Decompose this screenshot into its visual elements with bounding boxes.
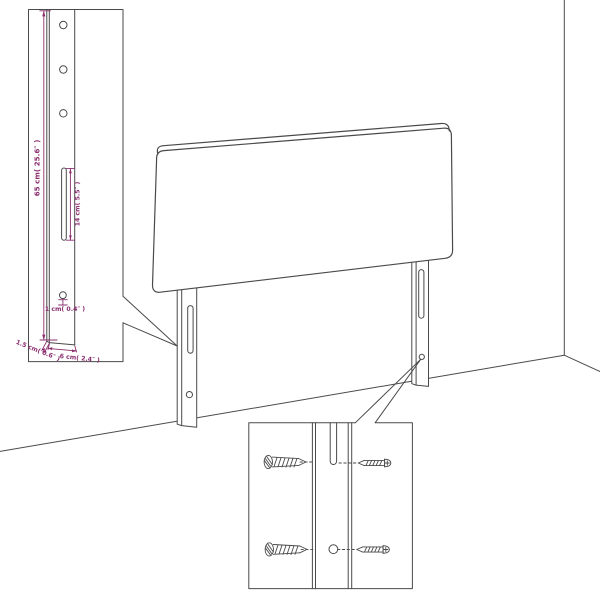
diagram-svg: 65 cm( 25.6″ ) 14 cm( 5.5″ ) 1 cm( 0.4″ … — [0, 0, 600, 600]
height-label: 65 cm( 25.6″ ) — [33, 140, 42, 197]
post-bottom-hole — [60, 292, 67, 299]
floor-line-right — [564, 355, 600, 371]
post-callout-upper — [123, 296, 177, 346]
strip-hole — [329, 545, 338, 554]
screw-icon-top — [339, 459, 391, 467]
screw-icon-bottom — [338, 546, 390, 554]
left-leg-slot — [188, 306, 193, 354]
slot-length-label: 14 cm( 5.5″ ) — [74, 182, 81, 227]
dimension-height: 65 cm( 25.6″ ) — [33, 11, 58, 340]
dimension-hole: 1 cm( 0.4″ ) — [45, 300, 85, 313]
leg-strip-drawing — [312, 423, 351, 589]
right-leg-slot — [419, 270, 424, 319]
post-callout-lower — [123, 323, 177, 346]
side-thickness-label: 1.5 cm( 0.6″ ) — [15, 339, 61, 363]
headboard-dimension-diagram: 65 cm( 25.6″ ) 14 cm( 5.5″ ) 1 cm( 0.4″ … — [0, 0, 600, 600]
left-leg-body — [177, 286, 197, 427]
screw-callout-right — [375, 359, 421, 422]
post-bottom-edge — [47, 341, 75, 345]
screw-callout-left — [355, 359, 420, 422]
headboard-left-leg — [177, 286, 197, 427]
post-detail-box: 65 cm( 25.6″ ) 14 cm( 5.5″ ) 1 cm( 0.4″ … — [15, 10, 123, 365]
post-slot — [62, 168, 67, 240]
floor-line-left — [0, 355, 564, 451]
front-width-label: 6 cm( 2.4″ ) — [59, 353, 100, 364]
headboard-panel — [153, 128, 453, 292]
hole-offset-label: 1 cm( 0.4″ ) — [45, 306, 85, 313]
post-hole-3 — [60, 110, 67, 117]
left-leg-hole — [186, 392, 192, 398]
callout-lines — [123, 296, 421, 422]
hatched-screw-icon-top — [264, 455, 312, 468]
dimension-slot: 14 cm( 5.5″ ) — [66, 168, 81, 240]
dimension-side: 1.5 cm( 0.6″ ) — [15, 339, 61, 363]
headboard-right-leg — [412, 259, 429, 386]
hatched-screw-icon-bottom — [265, 543, 313, 556]
strip-slot — [330, 423, 336, 465]
screw-detail-box — [249, 423, 413, 589]
right-leg-hole — [419, 354, 424, 359]
post-hole-2 — [60, 66, 67, 73]
post-hole-1 — [60, 21, 67, 28]
